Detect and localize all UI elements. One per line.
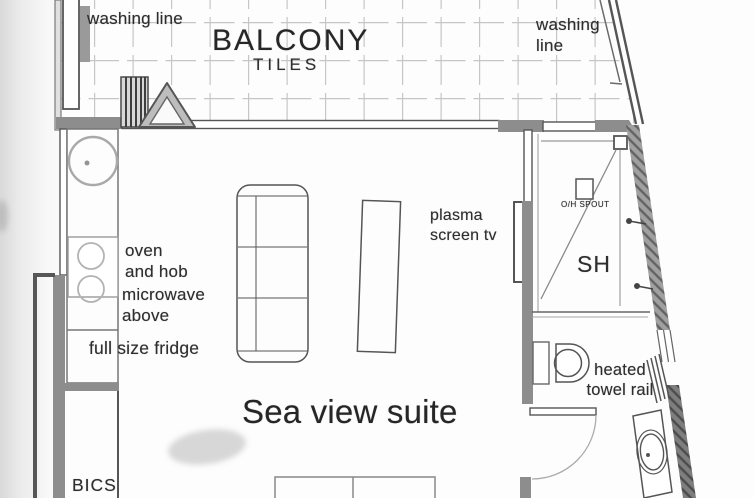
partition-wall <box>522 201 533 404</box>
suite-name-label: Sea view suite <box>242 392 458 432</box>
sink-tap-dot <box>85 161 90 166</box>
shower-wall <box>520 130 533 498</box>
door-jamb <box>520 477 531 498</box>
plasma-screen-tv-label: plasma screen tv <box>430 206 497 245</box>
wall-segment <box>498 120 544 132</box>
oven-and-hob-label: oven and hob <box>125 241 188 282</box>
full-size-fridge-label: full size fridge <box>89 338 199 359</box>
balcony-left-wall <box>55 0 61 130</box>
basin-drain-dot <box>646 453 650 457</box>
door-swing-arc <box>532 415 596 479</box>
outer-wall-line <box>33 273 37 498</box>
outer-wall-connector <box>33 273 55 277</box>
balcony-railing <box>63 0 79 109</box>
bics-label: BICS <box>72 475 117 496</box>
cistern <box>533 342 549 384</box>
floor-plan: washing line BALCONY TILES washing line … <box>0 0 754 498</box>
heated-towel-rail-label: heated towel rail <box>578 360 662 400</box>
partition-wall-thin <box>524 130 532 202</box>
window <box>543 122 596 131</box>
bics-divider-wall <box>53 383 119 391</box>
bottom-table <box>275 477 435 498</box>
table-outline <box>275 477 435 498</box>
door-leaf <box>530 408 596 415</box>
shower-label: SH <box>577 250 611 278</box>
shower-corner-post <box>614 136 627 149</box>
tiles-label: TILES <box>253 55 320 76</box>
overhead-spout <box>576 179 593 199</box>
balustrade-end <box>610 83 622 84</box>
table <box>357 200 400 352</box>
washing-line-left-label: washing line <box>87 9 183 30</box>
oh-spout-label: O/H SPOUT <box>561 200 610 210</box>
kitchen <box>33 129 119 498</box>
oven-hob-unit <box>68 237 118 297</box>
microwave-above-label: microwave above <box>122 285 205 326</box>
wall-segment <box>56 117 122 129</box>
plasma-tv <box>514 202 523 282</box>
washing-line-right-label: washing line <box>536 15 600 56</box>
sofa <box>237 185 308 362</box>
basin <box>633 410 672 498</box>
kitchen-left-wall <box>60 129 67 275</box>
diagonal-wall-upper <box>626 125 670 330</box>
